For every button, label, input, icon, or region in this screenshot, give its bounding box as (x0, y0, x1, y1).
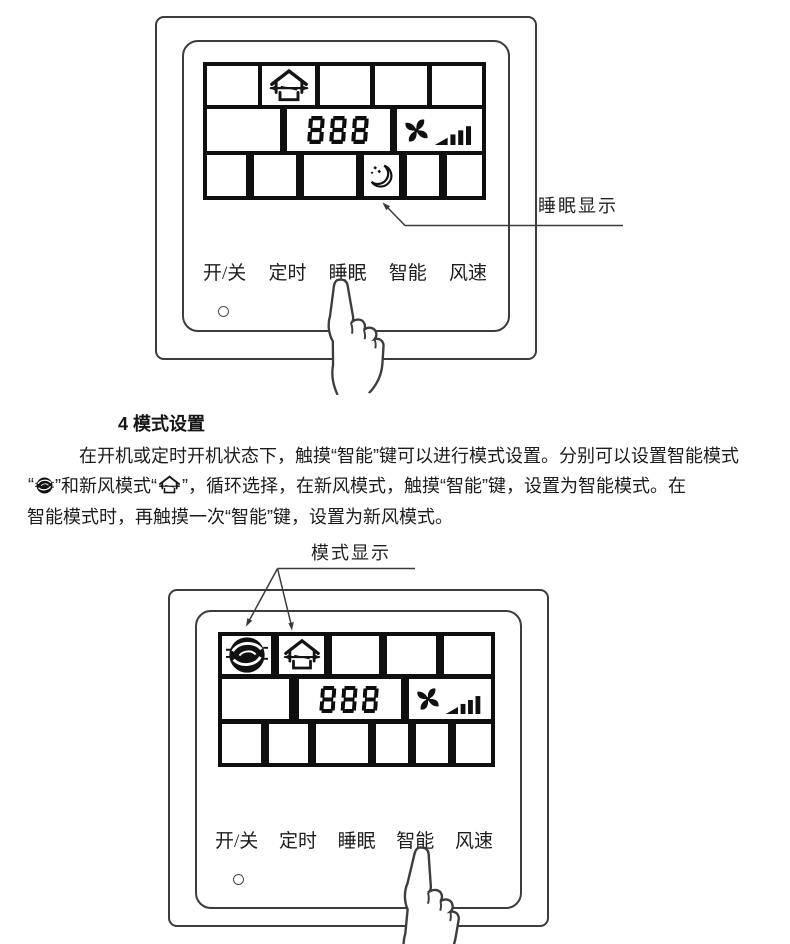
indicator-led (233, 874, 244, 885)
line2-end-text: ”，循环选择，在新风模式，触摸“智能”键，设置为智能模式。在 (182, 472, 686, 498)
lcd-cell (387, 636, 436, 674)
fresh-air-mode-icon (282, 638, 322, 672)
indicator-led (218, 306, 229, 317)
fan-speed-bars-icon (433, 123, 477, 145)
button-power: 开/关 (203, 258, 246, 285)
lcd-cell (269, 724, 308, 763)
lcd-cell (397, 109, 482, 151)
lcd-cell (409, 679, 491, 719)
lcd-cell (207, 66, 258, 105)
lcd-display-bottom (218, 632, 495, 767)
lcd-temperature-readout (299, 679, 401, 719)
lcd-cell (222, 724, 261, 763)
lcd-cell (416, 724, 448, 763)
lcd-cell (207, 155, 246, 196)
lcd-cell (456, 724, 491, 763)
button-fan-speed: 风速 (449, 258, 487, 285)
lcd-cell (320, 66, 370, 105)
mode-display-callout-label: 模式显示 (311, 539, 391, 565)
lcd-cell (304, 155, 356, 196)
smart-mode-icon (226, 634, 268, 676)
pointing-hand-icon (380, 843, 478, 944)
lcd-cell (332, 636, 379, 674)
sleep-moon-icon (368, 162, 395, 189)
button-timer: 定时 (268, 258, 306, 285)
lcd-display-top (203, 62, 486, 200)
fan-icon (403, 117, 430, 144)
button-sleep: 睡眠 (338, 826, 376, 853)
lcd-cell (316, 724, 368, 763)
lcd-cell (432, 66, 482, 105)
seven-segment-888 (319, 686, 381, 713)
lcd-cell (364, 155, 399, 196)
fresh-air-mode-icon (268, 68, 310, 104)
button-timer: 定时 (279, 826, 317, 853)
manual-page: 开/关 定时 睡眠 智能 风速 睡眠显示 4 模式设置 在开机或定时开机状态下，… (0, 0, 790, 944)
section-heading: 4 模式设置 (118, 410, 205, 436)
paragraph-line-2: “ ”和新风模式“ ”，循环选择，在新风模式，触摸“智能”键，设置为智能模式。在 (28, 472, 686, 498)
line2-mid-text: ”和新风模式“ (55, 472, 157, 498)
paragraph-line-3: 智能模式时，再触摸一次“智能”键，设置为新风模式。 (27, 503, 453, 529)
quote-open: “ (28, 475, 34, 496)
lcd-cell (444, 636, 491, 674)
lcd-cell (222, 679, 289, 719)
seven-segment-888 (307, 116, 371, 144)
lcd-cell (375, 66, 427, 105)
fan-speed-bars-icon (444, 693, 486, 714)
lcd-cell (376, 724, 408, 763)
lcd-cell (279, 636, 324, 674)
fan-icon (415, 686, 441, 712)
button-smart: 智能 (389, 258, 427, 285)
lcd-cell (222, 636, 271, 674)
lcd-cell (254, 155, 296, 196)
sleep-display-callout-label: 睡眠显示 (538, 192, 618, 218)
fresh-air-mode-icon (158, 475, 181, 495)
lcd-cell (447, 155, 482, 196)
lcd-cell (262, 66, 315, 105)
smart-mode-icon (35, 476, 54, 495)
lcd-temperature-readout (287, 109, 390, 151)
pointing-hand-icon (306, 274, 400, 396)
button-power: 开/关 (215, 826, 258, 853)
lcd-cell (407, 155, 439, 196)
paragraph-line-1: 在开机或定时开机状态下，触摸“智能”键可以进行模式设置。分别可以设置智能模式 (79, 442, 739, 468)
lcd-cell (207, 109, 280, 151)
